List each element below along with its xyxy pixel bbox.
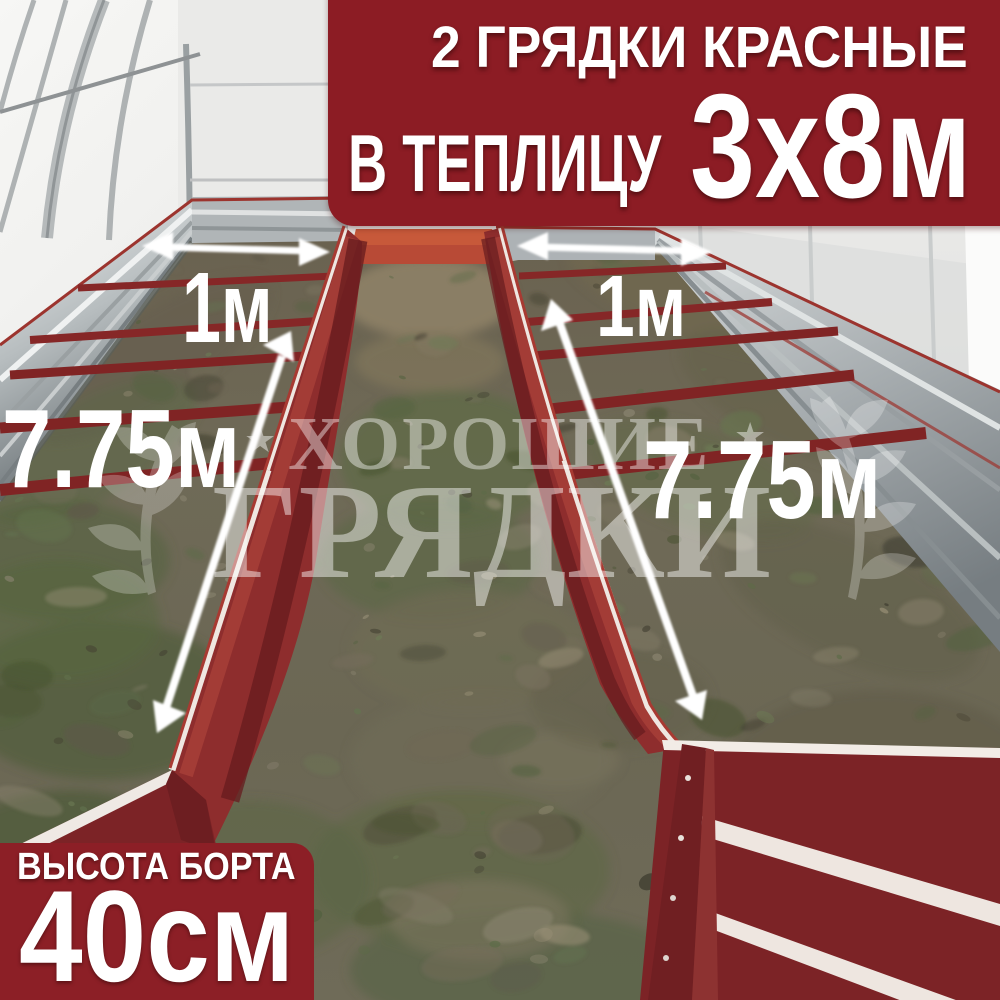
svg-text:1м: 1м [596,258,686,355]
svg-text:7.75м: 7.75м [643,419,881,543]
svg-text:1м: 1м [182,253,273,364]
svg-text:7.75м: 7.75м [2,388,240,512]
